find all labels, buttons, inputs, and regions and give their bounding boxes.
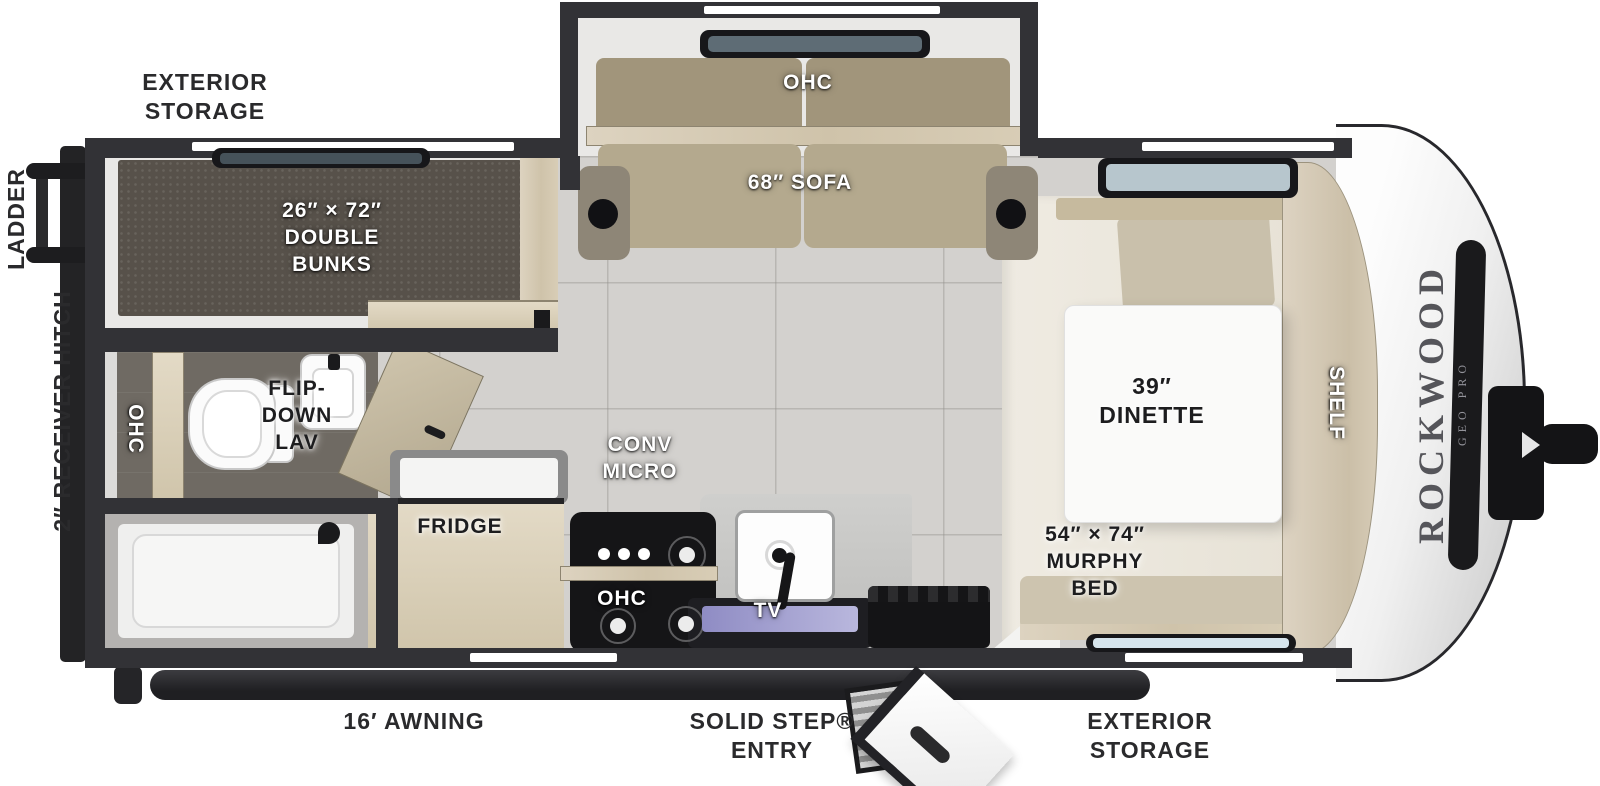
label-line: 54″ × 74″ [1000, 522, 1190, 549]
label-line: DOUBLE [232, 225, 432, 252]
hitch-jack-icon [1538, 424, 1598, 464]
exterior-storage-top-label: EXTERIOR STORAGE [105, 68, 305, 127]
dinette-bench-cushion [1117, 207, 1276, 317]
cupholder-icon [588, 199, 618, 229]
brand-logo: ROCKWOOD GEO PRO [1405, 238, 1475, 568]
burner-cap-icon [610, 618, 626, 634]
label-line: STORAGE [1050, 736, 1250, 765]
label-line: 26″ × 72″ [232, 198, 432, 225]
sofa-ohc-shelf [586, 126, 1026, 146]
dinette-window-glass [1106, 164, 1290, 191]
wall-stub [560, 156, 580, 190]
cupholder-icon [996, 199, 1026, 229]
cooktop-knob-icon [618, 548, 630, 560]
bath-divider-wall [103, 498, 378, 514]
ladder-icon [26, 247, 92, 263]
ladder-label: LADDER [2, 144, 26, 294]
burner-cap-icon [679, 547, 695, 563]
ladder-icon [26, 163, 92, 179]
dinette-label: 39″ DINETTE [1052, 372, 1252, 431]
solid-step-entry-label: SOLID STEP® ENTRY [662, 707, 882, 766]
murphy-bed-label: 54″ × 74″ MURPHY BED [1000, 522, 1190, 603]
label-line: SOLID STEP® [662, 707, 882, 736]
label-line: DINETTE [1052, 401, 1252, 430]
door-handle-icon [423, 424, 446, 440]
brand-series: GEO PRO [1455, 360, 1470, 446]
shelf-label: SHELF [1325, 343, 1349, 463]
sofa-label: 68″ SOFA [700, 170, 900, 197]
bunk-window-glass [220, 153, 422, 164]
sofa-ohc-label: OHC [758, 70, 858, 97]
label-line: FLIP- [227, 376, 367, 403]
burner-cap-icon [678, 616, 694, 632]
label-line: BUNKS [232, 252, 432, 279]
door-handle-icon [908, 723, 953, 766]
label-line: DOWN [227, 403, 367, 430]
label-line: EXTERIOR [1050, 707, 1250, 736]
furnace-vent-icon [868, 586, 990, 602]
conv-micro-label: CONV MICRO [565, 432, 715, 486]
label-line: LAV [227, 430, 367, 457]
window-sill-shelf [1056, 198, 1300, 220]
slideout-exterior-window [704, 6, 940, 14]
kitchen-exterior-window [470, 653, 617, 662]
label-line: EXTERIOR [105, 68, 305, 97]
flip-down-lav-label: FLIP- DOWN LAV [227, 376, 367, 457]
label-line: MURPHY [1000, 549, 1190, 576]
brand-name: ROCKWOOD [1410, 262, 1452, 544]
label-line: CONV [565, 432, 715, 459]
bunk-divider-wall [85, 328, 558, 352]
kitchen-ohc-shelf [560, 566, 718, 581]
tv-label: TV [718, 598, 818, 625]
bath-ohc-label: OHC [124, 389, 148, 469]
fridge-top-sheet [400, 458, 558, 498]
exterior-storage-door-bottom [1125, 653, 1303, 662]
bathroom-wall-trim [103, 352, 117, 510]
murphy-window-glass [1093, 638, 1289, 648]
shower-pan-inner [132, 534, 340, 628]
fridge-label: FRIDGE [385, 514, 535, 541]
lav-faucet-icon [328, 354, 340, 370]
exterior-storage-bottom-label: EXTERIOR STORAGE [1050, 707, 1250, 766]
double-bunks-label: 26″ × 72″ DOUBLE BUNKS [232, 198, 432, 279]
receiver-hitch-label: 2″ RECEIVER HITCH [48, 281, 72, 541]
slideout-wall-right [1020, 2, 1038, 156]
label-line: MICRO [565, 459, 715, 486]
floorplan-diagram: ROCKWOOD GEO PRO [0, 0, 1600, 786]
label-line: 39″ [1052, 372, 1252, 401]
shower-head-icon [318, 522, 340, 544]
sofa-window-glass [708, 36, 922, 52]
kitchen-ohc-label: OHC [572, 586, 672, 613]
awning-roller [150, 670, 1150, 700]
bathroom-ohc-cabinet [152, 352, 184, 500]
dinette-exterior-window [1142, 142, 1334, 151]
label-line: ENTRY [662, 736, 882, 765]
awning-end-cap [114, 666, 142, 704]
label-line: BED [1000, 576, 1190, 603]
wall-rear [85, 138, 105, 668]
hitch-chevron-icon [1522, 432, 1540, 458]
cooktop-knob-icon [598, 548, 610, 560]
slideout-wall-left [560, 2, 578, 156]
cooktop-knob-icon [638, 548, 650, 560]
awning-label: 16′ AWNING [314, 707, 514, 736]
label-line: STORAGE [105, 97, 305, 126]
